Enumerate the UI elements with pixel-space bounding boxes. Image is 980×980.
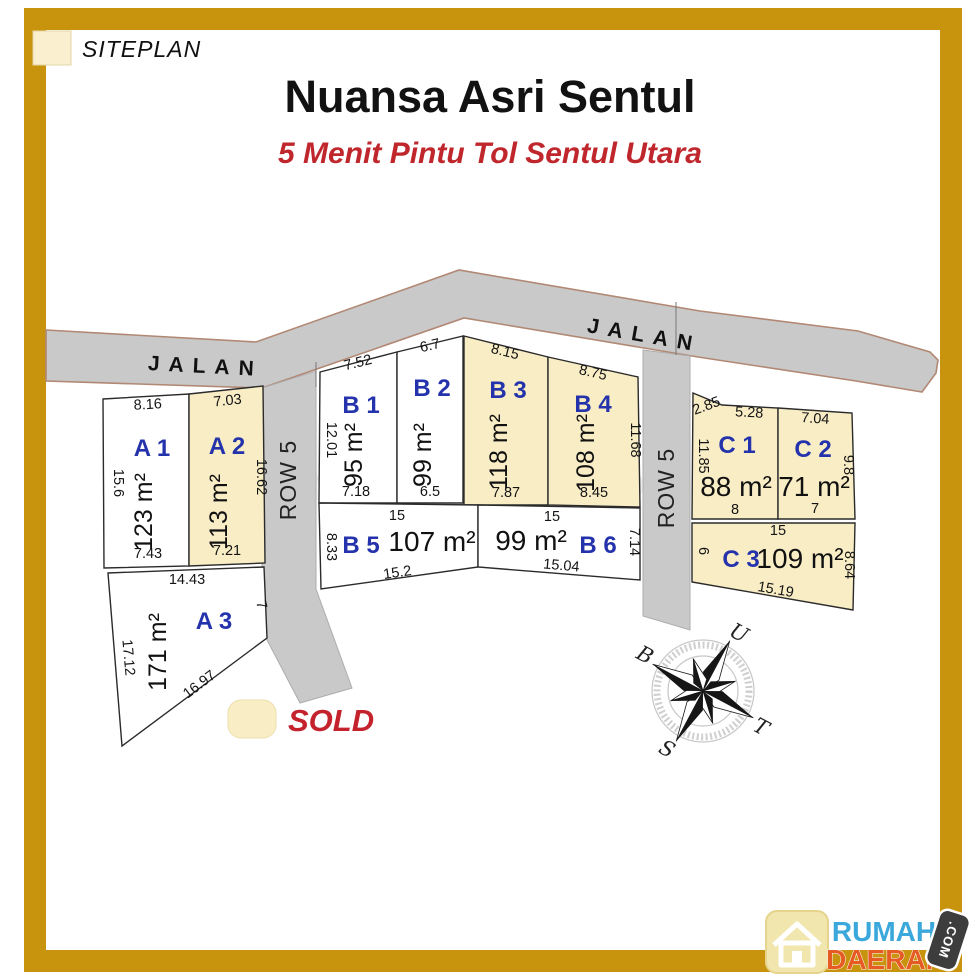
plot-A3-dim-1: 17.12 bbox=[118, 639, 137, 677]
plot-C3-dim-0: 15 bbox=[770, 523, 786, 539]
plot-A3-area: 171 m² bbox=[144, 613, 172, 691]
plot-A2-label: A 2 bbox=[209, 433, 245, 460]
plot-A2-dim-0: 7.03 bbox=[213, 392, 243, 411]
plot-B4-label: B 4 bbox=[574, 391, 612, 418]
plot-B3-label: B 3 bbox=[489, 377, 526, 404]
brand-logo: RUMAH DAERAH .COM bbox=[766, 907, 972, 975]
plot-A2-dim-2: 7.21 bbox=[213, 543, 241, 559]
plot-A2-area: 113 m² bbox=[205, 474, 233, 550]
plot-B5-dim-0: 15 bbox=[389, 508, 405, 524]
plot-B1-label: B 1 bbox=[342, 392, 379, 419]
plot-C1-dim-3: 8 bbox=[731, 502, 739, 518]
sold-legend-swatch bbox=[228, 700, 276, 738]
plot-A2: A 2113 m²7.0316.627.21 bbox=[189, 386, 269, 566]
plot-B1-dim-2: 7.18 bbox=[342, 484, 370, 500]
logo-line1: RUMAH bbox=[832, 916, 936, 947]
siteplan-legend-swatch bbox=[33, 31, 71, 65]
plot-A1-label: A 1 bbox=[134, 435, 170, 462]
plot-A2-dim-1: 16.62 bbox=[253, 459, 269, 495]
plot-B2-area: 99 m² bbox=[409, 423, 437, 487]
plot-A1: A 1123 m²8.1615.67.43 bbox=[103, 394, 189, 568]
plot-B6: B 699 m²1515.047.14 bbox=[478, 505, 642, 580]
plot-C2-area: 71 m² bbox=[778, 471, 850, 502]
row5-label-right: ROW 5 bbox=[653, 448, 679, 528]
plot-B5-area: 107 m² bbox=[388, 526, 475, 557]
plot-A3-label: A 3 bbox=[196, 608, 232, 635]
plot-A1-area: 123 m² bbox=[130, 473, 158, 551]
plot-C2-label: C 2 bbox=[794, 436, 831, 463]
plots-layer: A 1123 m²8.1615.67.43A 2113 m²7.0316.627… bbox=[103, 336, 857, 746]
plot-C1-dim-2: 11.85 bbox=[695, 438, 711, 473]
plot-C3: C 3109 m²1568.6415.19 bbox=[692, 523, 857, 610]
plot-C3-label: C 3 bbox=[722, 546, 759, 573]
plot-B4-dim-2: 11.68 bbox=[627, 422, 643, 457]
plot-C1-label: C 1 bbox=[718, 432, 755, 459]
plot-B5-dim-1: 8.33 bbox=[323, 533, 339, 561]
plot-C1: C 188 m²2.855.2811.858 bbox=[691, 393, 778, 519]
plot-C1-area: 88 m² bbox=[700, 471, 772, 502]
plot-B6-dim-0: 15 bbox=[544, 509, 560, 525]
plot-C3-dim-2: 8.64 bbox=[841, 551, 857, 579]
plot-B1-area: 95 m² bbox=[340, 423, 368, 487]
page-title: Nuansa Asri Sentul bbox=[285, 71, 696, 122]
plot-B2-dim-1: 6.5 bbox=[420, 484, 440, 500]
plot-B3-dim-1: 7.87 bbox=[492, 485, 520, 501]
plot-B5-label: B 5 bbox=[342, 532, 379, 559]
plot-B2-label: B 2 bbox=[413, 375, 450, 402]
plot-A3-dim-0: 14.43 bbox=[169, 572, 205, 588]
plot-B6-dim-2: 7.14 bbox=[626, 528, 642, 556]
compass-north-label: U bbox=[726, 618, 754, 648]
sold-legend-label: SOLD bbox=[288, 703, 374, 738]
compass-rose bbox=[652, 640, 754, 742]
plot-C2-dim-0: 7.04 bbox=[801, 410, 830, 428]
plot-B4-area: 108 m² bbox=[572, 414, 600, 492]
siteplan-canvas: SITEPLAN Nuansa Asri Sentul 5 Menit Pint… bbox=[0, 0, 980, 980]
plot-B6-label: B 6 bbox=[579, 532, 616, 559]
row5-label-left: ROW 5 bbox=[275, 440, 301, 520]
plot-B5: B 5107 m²158.3315.26 bbox=[319, 503, 499, 589]
plot-A1-dim-2: 7.43 bbox=[134, 546, 162, 562]
plot-C2-dim-2: 7 bbox=[811, 501, 819, 517]
plot-B3-area: 118 m² bbox=[485, 414, 513, 490]
plot-C2-dim-1: 9.8 bbox=[840, 455, 856, 475]
plot-C3-dim-1: 6 bbox=[695, 547, 711, 555]
plot-B6-area: 99 m² bbox=[495, 525, 567, 556]
plot-C3-area: 109 m² bbox=[756, 543, 843, 574]
plot-C2: C 271 m²7.049.87 bbox=[778, 408, 856, 519]
plot-B1-dim-1: 12.01 bbox=[323, 422, 339, 458]
plot-B4-dim-1: 8.45 bbox=[580, 485, 608, 501]
plot-A1-dim-1: 15.6 bbox=[110, 469, 126, 497]
siteplan-legend-label: SITEPLAN bbox=[82, 36, 201, 62]
compass-south-label: S bbox=[655, 735, 679, 763]
plot-C1-dim-1: 5.28 bbox=[735, 404, 764, 421]
page-subtitle: 5 Menit Pintu Tol Sentul Utara bbox=[278, 137, 702, 170]
plot-B4: B 4108 m²8.758.4511.68 bbox=[548, 357, 643, 507]
plot-B5-dim-2: 15.2 bbox=[382, 563, 412, 583]
plot-B6-dim-1: 15.04 bbox=[543, 556, 581, 575]
plot-A1-dim-0: 8.16 bbox=[133, 396, 162, 413]
